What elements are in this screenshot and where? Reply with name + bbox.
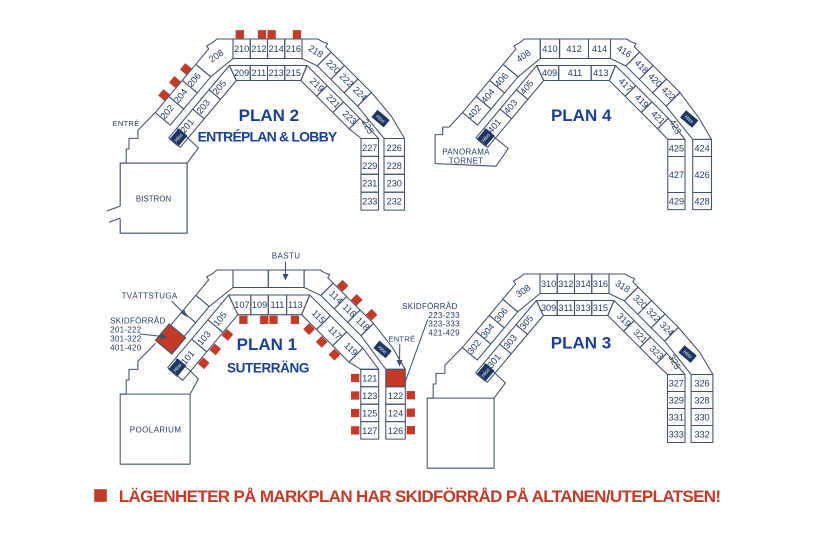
svg-text:413: 413 <box>593 68 608 78</box>
svg-text:231: 231 <box>362 179 377 189</box>
svg-text:315: 315 <box>593 303 608 313</box>
svg-text:309: 309 <box>541 303 556 313</box>
svg-text:301-322: 301-322 <box>110 335 142 344</box>
svg-text:PLAN 4: PLAN 4 <box>551 106 612 125</box>
svg-text:428: 428 <box>694 196 709 206</box>
svg-text:214: 214 <box>268 44 283 54</box>
svg-text:SKIDFÖRRÅD: SKIDFÖRRÅD <box>402 302 457 311</box>
svg-text:111: 111 <box>270 300 284 310</box>
svg-text:331: 331 <box>669 412 684 422</box>
svg-text:328: 328 <box>694 395 709 405</box>
svg-text:201-222: 201-222 <box>110 326 142 335</box>
svg-text:213: 213 <box>268 68 283 78</box>
svg-text:329: 329 <box>669 395 684 405</box>
svg-text:424: 424 <box>694 143 709 153</box>
svg-text:332: 332 <box>694 429 709 439</box>
svg-text:426: 426 <box>694 170 709 180</box>
svg-text:427: 427 <box>669 170 684 180</box>
svg-text:215: 215 <box>286 68 301 78</box>
svg-text:410: 410 <box>542 44 557 54</box>
svg-text:PANORAMA: PANORAMA <box>442 147 490 156</box>
svg-text:125: 125 <box>362 408 377 418</box>
svg-text:TVÄTTSTUGA: TVÄTTSTUGA <box>122 292 178 301</box>
svg-text:316: 316 <box>593 279 608 289</box>
svg-text:121: 121 <box>362 373 377 383</box>
svg-text:228: 228 <box>387 161 402 171</box>
svg-text:401-420: 401-420 <box>110 344 142 353</box>
svg-text:PLAN 3: PLAN 3 <box>551 334 611 353</box>
svg-text:421-429: 421-429 <box>428 328 460 337</box>
svg-text:312: 312 <box>558 279 573 289</box>
svg-text:209: 209 <box>234 68 249 78</box>
svg-text:ENTRÉ: ENTRÉ <box>388 335 415 344</box>
svg-text:113: 113 <box>288 300 303 310</box>
svg-text:POOLARIUM: POOLARIUM <box>130 425 182 434</box>
svg-text:313: 313 <box>575 303 590 313</box>
svg-text:216: 216 <box>286 44 301 54</box>
svg-text:127: 127 <box>362 426 377 436</box>
svg-text:310: 310 <box>541 279 556 289</box>
svg-text:124: 124 <box>388 408 403 418</box>
svg-text:212: 212 <box>251 44 266 54</box>
svg-text:311: 311 <box>559 303 574 313</box>
svg-text:414: 414 <box>592 44 607 54</box>
svg-text:230: 230 <box>387 179 402 189</box>
svg-text:LÄGENHETER PÅ MARKPLAN HAR SKI: LÄGENHETER PÅ MARKPLAN HAR SKIDFÖRRÅD PÅ… <box>119 487 721 506</box>
svg-text:122: 122 <box>388 391 403 401</box>
svg-text:ENTRÉ: ENTRÉ <box>113 119 140 128</box>
svg-text:SKIDFÖRRÅD: SKIDFÖRRÅD <box>110 317 165 326</box>
svg-text:109: 109 <box>252 300 267 310</box>
svg-text:412: 412 <box>566 44 581 54</box>
svg-text:411: 411 <box>568 68 583 78</box>
svg-text:323-333: 323-333 <box>428 320 460 329</box>
svg-text:ENTRÉPLAN & LOBBY: ENTRÉPLAN & LOBBY <box>198 129 338 145</box>
svg-text:223-233: 223-233 <box>428 311 460 320</box>
svg-text:330: 330 <box>694 412 709 422</box>
svg-text:211: 211 <box>252 68 267 78</box>
svg-text:PLAN 2: PLAN 2 <box>239 106 299 125</box>
svg-text:107: 107 <box>234 300 249 310</box>
svg-text:126: 126 <box>388 426 403 436</box>
svg-text:327: 327 <box>669 378 684 388</box>
svg-text:429: 429 <box>669 196 684 206</box>
svg-text:123: 123 <box>362 391 377 401</box>
svg-text:PLAN 1: PLAN 1 <box>237 335 297 354</box>
svg-text:BASTU: BASTU <box>272 252 301 261</box>
svg-text:314: 314 <box>575 279 590 289</box>
svg-text:BISTRON: BISTRON <box>136 194 171 203</box>
svg-text:210: 210 <box>234 44 249 54</box>
svg-text:326: 326 <box>694 378 709 388</box>
svg-text:226: 226 <box>387 143 402 153</box>
svg-text:SUTERRÄNG: SUTERRÄNG <box>227 360 309 375</box>
svg-text:229: 229 <box>362 161 377 171</box>
svg-text:233: 233 <box>362 197 377 207</box>
svg-text:333: 333 <box>669 429 684 439</box>
svg-text:232: 232 <box>387 197 402 207</box>
svg-text:227: 227 <box>362 143 377 153</box>
svg-text:425: 425 <box>669 143 684 153</box>
svg-text:TORNET: TORNET <box>449 156 484 165</box>
svg-text:409: 409 <box>542 68 557 78</box>
